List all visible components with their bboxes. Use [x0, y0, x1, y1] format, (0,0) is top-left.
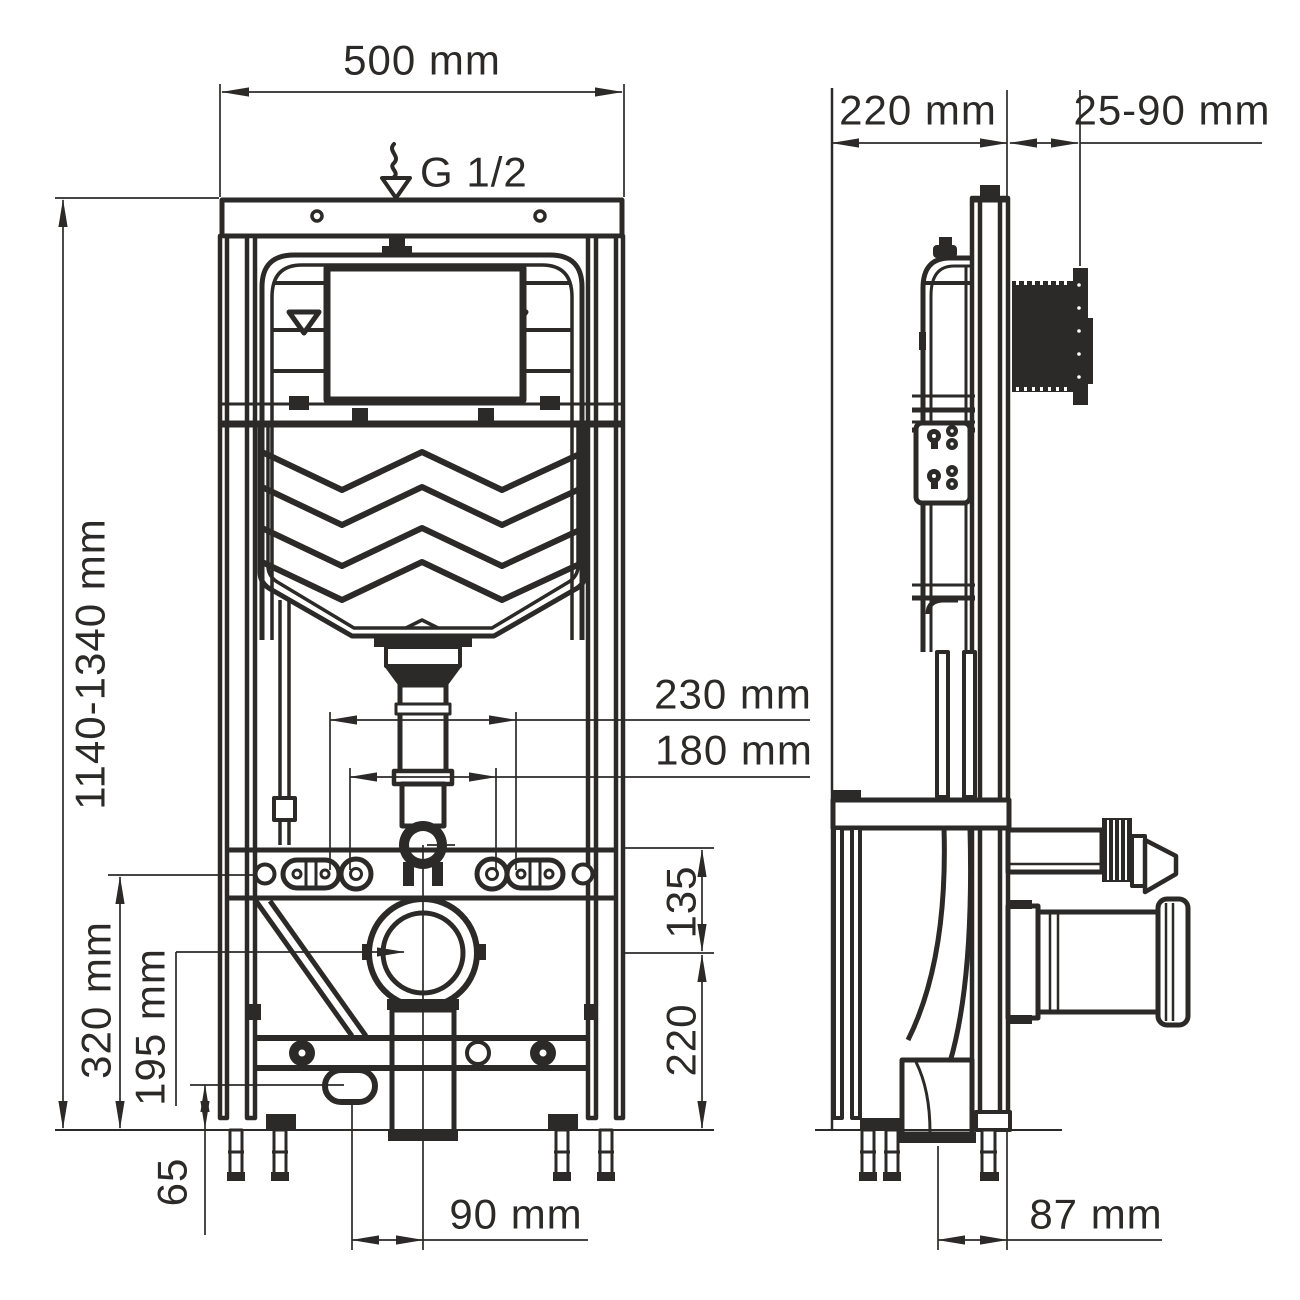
flush-valve-and-pipe	[374, 638, 472, 826]
wave-line	[262, 487, 584, 525]
top-rail	[222, 200, 622, 236]
supply-pipe	[274, 600, 295, 845]
side-cistern	[912, 237, 975, 797]
dim-side-drain-offset-label: 87 mm	[1029, 1191, 1162, 1238]
side-view	[815, 88, 1188, 1181]
drain-outlet	[362, 899, 486, 1141]
flush-plate-housing	[1012, 268, 1093, 405]
dim-height-range-label: 1140-1340 mm	[67, 518, 114, 809]
wave-line	[262, 562, 584, 600]
water-supply-icon	[382, 144, 410, 198]
dim-studs-height-label: 320 mm	[73, 921, 120, 1079]
dim-drain-height-label: 220	[658, 1003, 705, 1076]
dim-drain-offset-label: 90 mm	[449, 1191, 582, 1238]
dim-frame-width-label: 500 mm	[343, 37, 501, 84]
side-profile	[972, 185, 1008, 1118]
keyhole-plate	[916, 423, 970, 503]
cross-band	[222, 404, 622, 424]
side-flush-pipe	[1008, 818, 1176, 892]
oval-outlet	[325, 1070, 375, 1102]
side-bracket	[833, 790, 1009, 1143]
dim-fixing-outer-label: 230 mm	[654, 671, 812, 718]
side-drain-socket	[1008, 899, 1188, 1025]
access-box	[327, 237, 523, 400]
dim-outlet-axis-label: 195 mm	[127, 948, 174, 1106]
technical-drawing-page: 500 mm G 1/2 1140-1340 mm 230 mm 180 mm …	[0, 0, 1300, 1300]
dim-water-supply-label: G 1/2	[420, 149, 528, 196]
cistern-tank	[260, 427, 586, 636]
dim-fixing-inner-label: 180 mm	[655, 727, 813, 774]
installation-frame-drawing: 500 mm G 1/2 1140-1340 mm 230 mm 180 mm …	[0, 0, 1300, 1300]
dim-panel-depth-label: 25-90 mm	[1073, 87, 1270, 134]
dim-frame-depth-label: 220 mm	[839, 87, 997, 134]
dim-oval-height-label: 65	[149, 1158, 196, 1207]
dim-bar-to-drain-label: 135	[658, 865, 705, 938]
